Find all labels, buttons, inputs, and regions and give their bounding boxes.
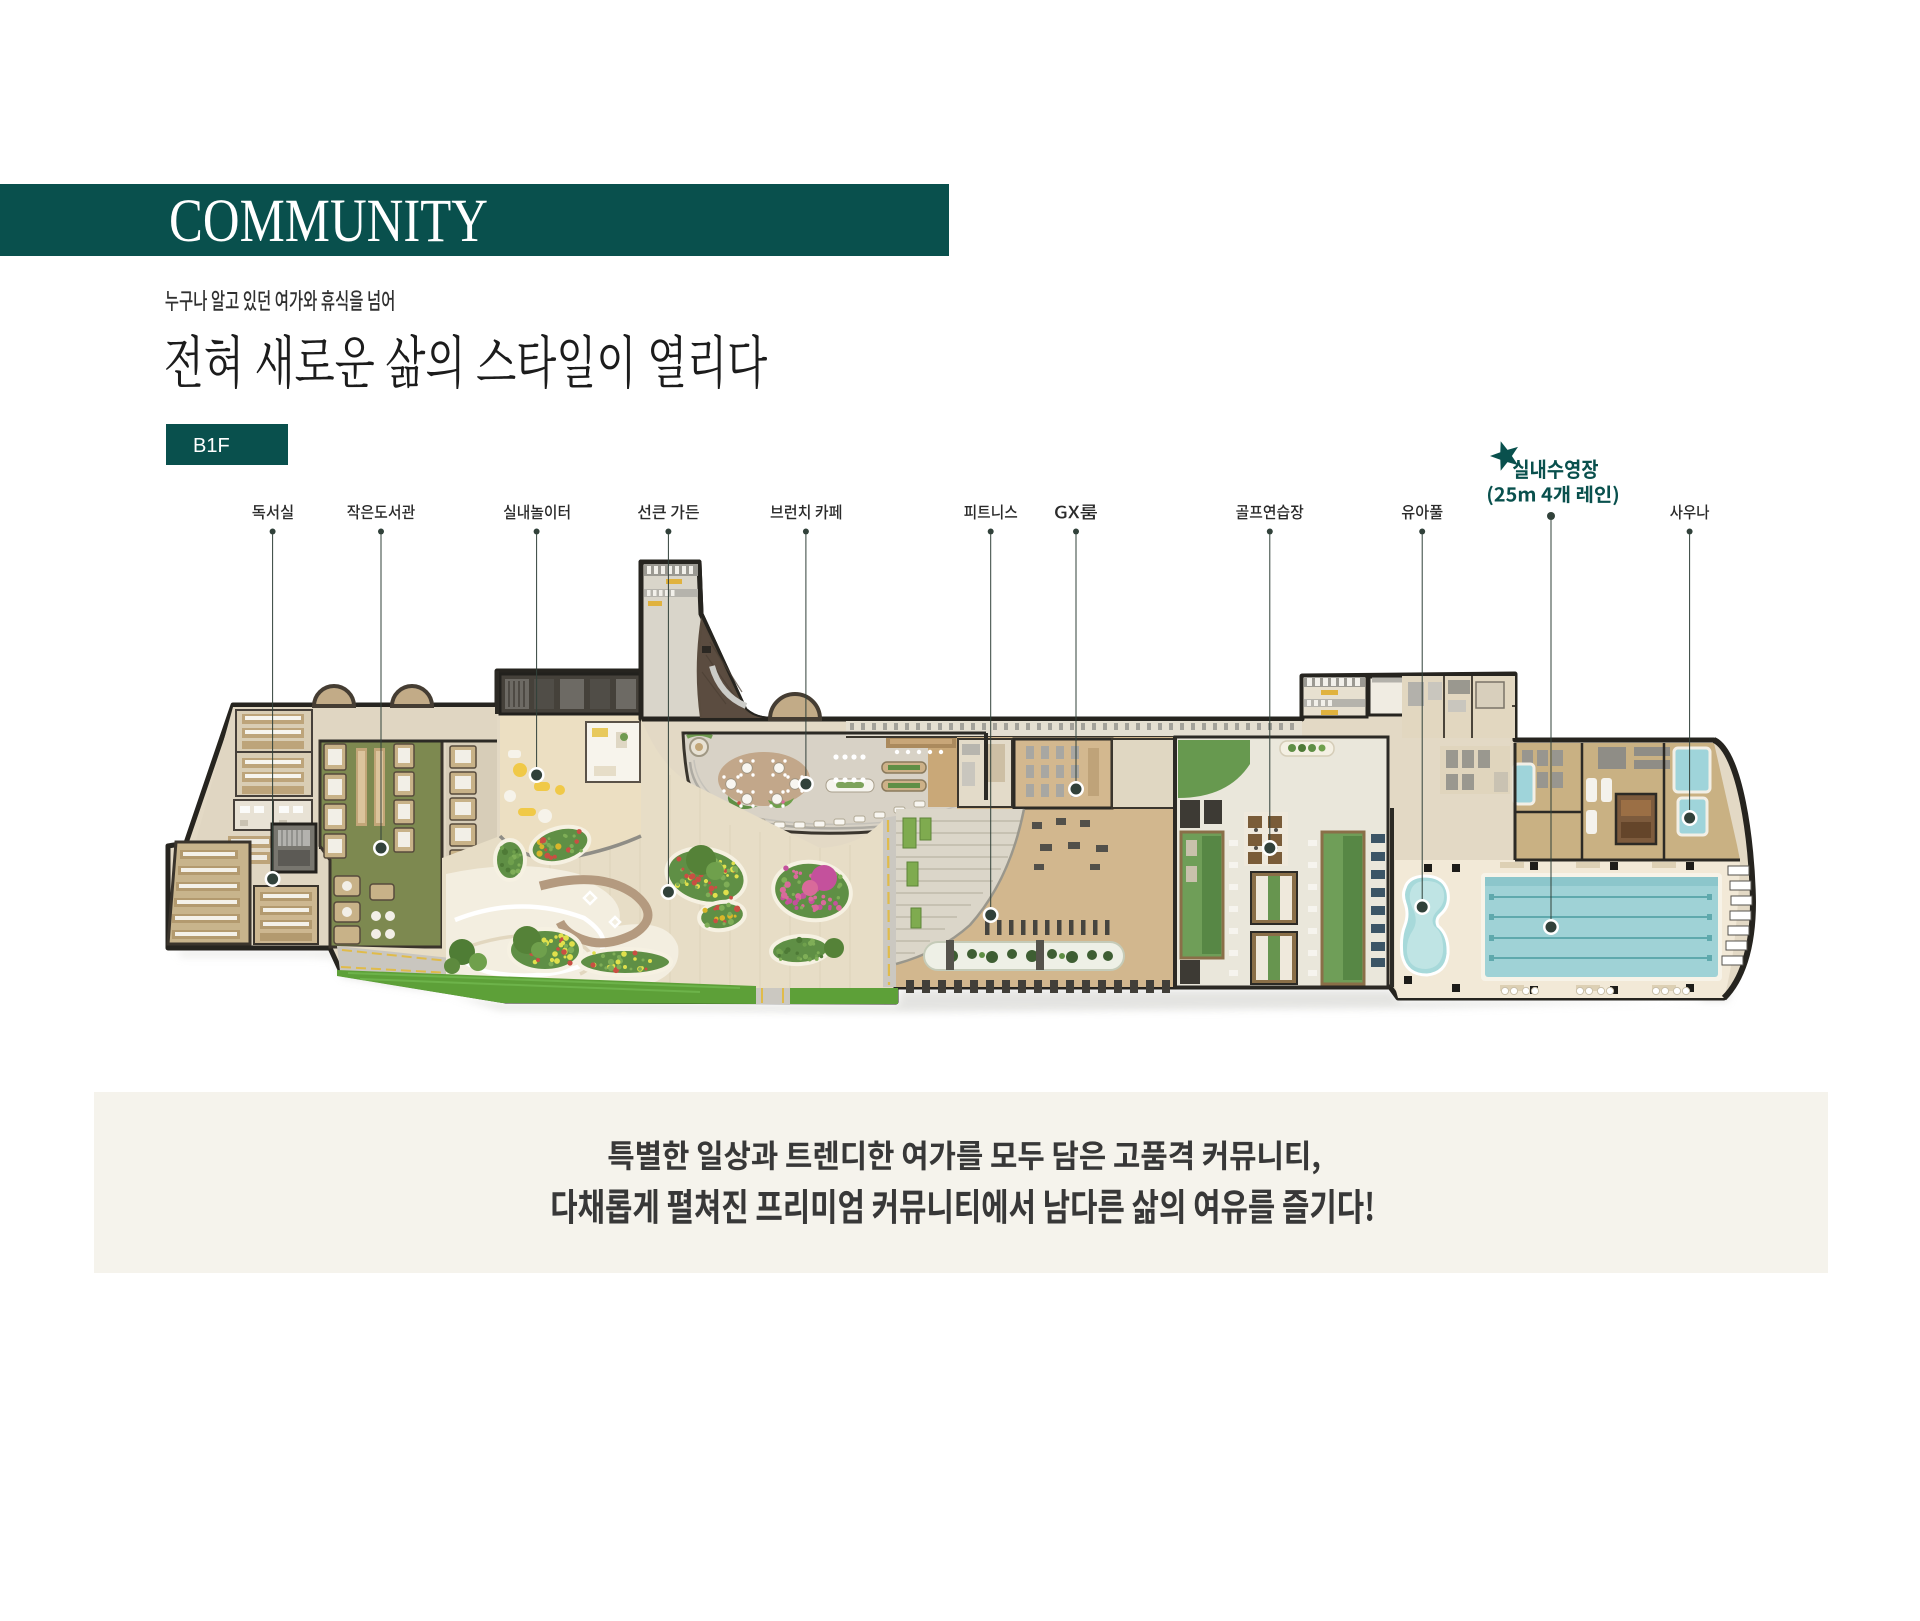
svg-text:COMMUNITY: COMMUNITY [169, 188, 488, 255]
svg-text:B1F: B1F [193, 435, 230, 457]
